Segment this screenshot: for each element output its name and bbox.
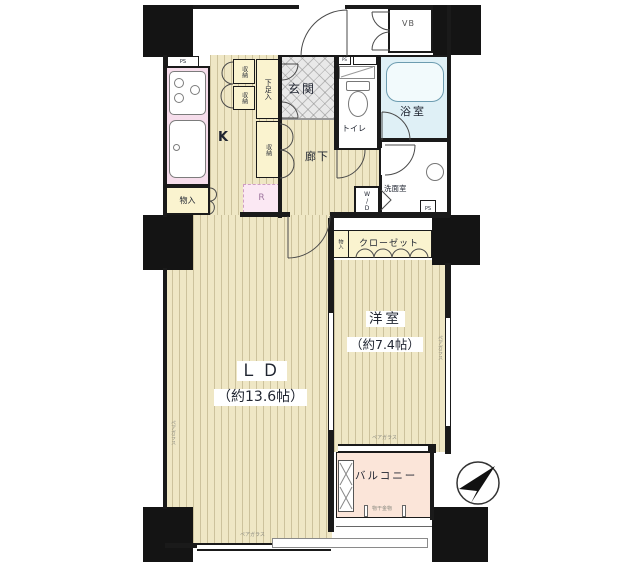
label-toilet: トイレ — [342, 124, 366, 134]
entrance-door-arc — [301, 10, 347, 56]
faucet — [173, 144, 180, 151]
column-top-left — [143, 5, 193, 57]
laundry-pole-post — [402, 505, 406, 517]
stove-burner — [174, 93, 184, 103]
storage-b: 収納 — [233, 86, 255, 110]
storage-c: 収納 — [256, 121, 280, 178]
wall — [278, 55, 282, 218]
bathtub — [386, 62, 444, 102]
wall — [240, 212, 290, 217]
wall — [328, 218, 334, 313]
hallway-floor — [280, 118, 334, 218]
room-vb-closet — [388, 8, 433, 53]
stove — [169, 71, 206, 115]
annotation-window-balcony: ペアガラス — [372, 435, 397, 441]
wall — [163, 55, 167, 217]
storage-a-label: 収納 — [240, 66, 247, 78]
column-mid-left — [143, 215, 193, 270]
storage-c-label: 収納 — [264, 144, 271, 156]
column-top-right — [433, 5, 481, 55]
closet-side-storage-label: 物入 — [338, 239, 344, 249]
label-hallway: 廊下 — [305, 150, 329, 163]
entrance-step-line — [281, 118, 335, 120]
label-western-size: （約7.4帖） — [347, 337, 423, 352]
column-bottom-left — [143, 507, 193, 562]
washbasin — [426, 163, 444, 181]
wall — [334, 55, 337, 150]
refrigerator-space: R — [243, 184, 280, 213]
label-western-name: 洋室 — [366, 311, 405, 327]
wall — [445, 263, 451, 318]
wall — [193, 5, 299, 9]
pipe-space-toilet-label: PS — [342, 58, 347, 63]
sliding-partition — [328, 313, 334, 430]
floor-plan: 物入 収納 収納 下足入 収納 クローゼット 物入 W/D PS PS PS R — [0, 0, 640, 569]
wall — [447, 5, 451, 217]
label-vb: VB — [402, 19, 415, 29]
pipe-space-top: PS — [167, 56, 199, 67]
refrigerator-label: R — [258, 193, 264, 204]
toilet-bowl — [348, 91, 368, 117]
label-kitchen: K — [218, 130, 228, 146]
stove-burner — [174, 78, 184, 88]
pipe-space-top-label: PS — [180, 59, 186, 65]
label-entrance: 玄関 — [288, 82, 316, 96]
shoe-cabinet-label: 下足入 — [264, 79, 272, 100]
western-room-floor — [334, 260, 446, 452]
balcony-partition — [338, 460, 354, 512]
wall — [379, 140, 382, 148]
washer-dryer-label: W/D — [363, 191, 370, 212]
stove-burner — [190, 85, 200, 95]
wall — [163, 268, 167, 509]
balcony-edge-line — [336, 526, 432, 527]
compass-icon — [457, 462, 499, 504]
shoe-cabinet: 下足入 — [256, 59, 280, 119]
wall — [445, 426, 451, 454]
label-balcony: バルコニー — [355, 470, 417, 483]
wall — [345, 5, 433, 9]
closet-label: クローゼット — [359, 239, 419, 250]
storage-monoire-label: 物入 — [180, 196, 196, 206]
wall — [379, 175, 382, 217]
toilet-upper-cabinet — [353, 56, 377, 65]
storage-monoire: 物入 — [165, 186, 210, 215]
storage-a: 収納 — [233, 59, 255, 84]
wall — [330, 212, 450, 218]
toilet-counter — [339, 66, 375, 79]
annotation-laundry: 物干金物 — [372, 506, 392, 512]
annotation-window-west-room: ペアガラス — [437, 335, 443, 360]
north-arrow-icon — [459, 466, 495, 503]
annotation-window-bottom: ペアガラス — [240, 532, 265, 538]
closet-side-storage: 物入 — [332, 230, 349, 258]
pipe-space-toilet: PS — [338, 56, 351, 65]
window — [445, 318, 451, 426]
wall — [428, 444, 436, 453]
balcony-railing — [272, 538, 428, 548]
label-ld-size: （約13.6帖） — [214, 389, 307, 406]
label-washroom: 洗面室 — [384, 184, 407, 193]
label-ld-name: ＬＤ — [237, 361, 287, 381]
annotation-window-left: ペアガラス — [170, 420, 176, 445]
laundry-pole-post — [364, 505, 368, 517]
label-bath: 浴室 — [400, 105, 426, 118]
column-mid-right — [432, 215, 480, 265]
wall — [165, 543, 197, 548]
wall — [328, 430, 334, 532]
storage-b-label: 収納 — [240, 92, 247, 104]
wall — [430, 452, 434, 520]
column-bottom-right — [432, 507, 488, 562]
toilet-tank — [346, 81, 370, 91]
window — [338, 444, 428, 453]
